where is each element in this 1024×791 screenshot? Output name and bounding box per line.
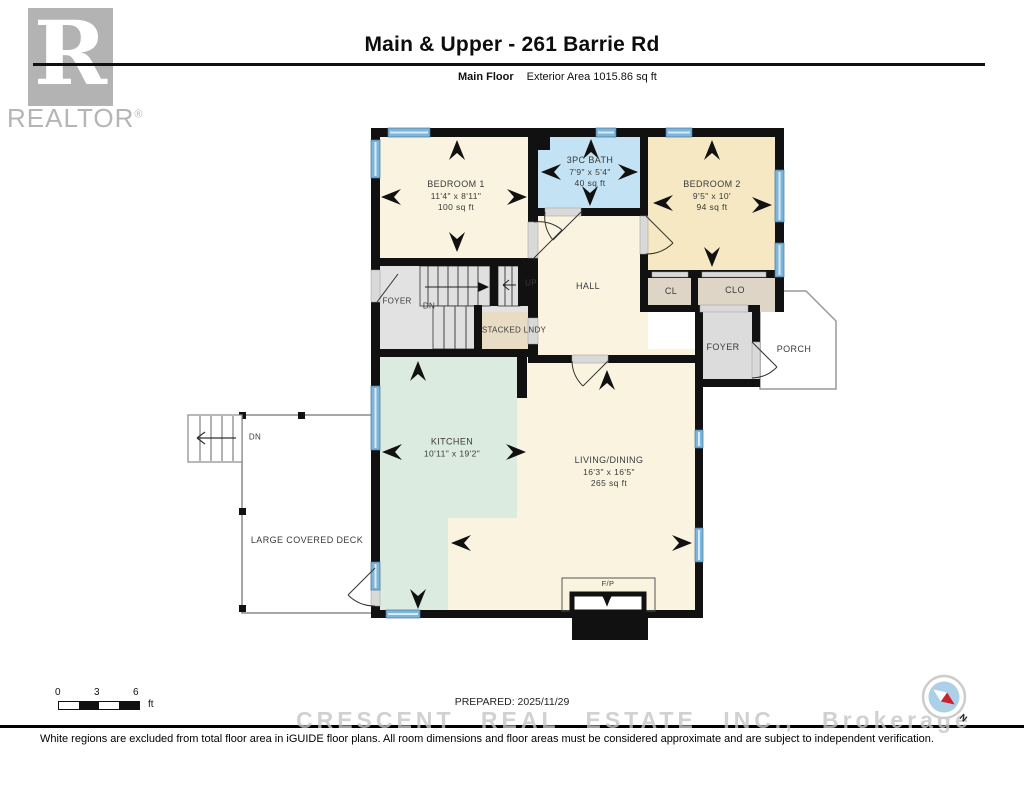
floor-plan-page: R REALTOR® Main & Upper - 261 Barrie Rd … — [0, 0, 1024, 791]
room-label-bath: 3PC BATH 7'9" x 5'4" 40 sq ft — [567, 155, 614, 189]
room-dims: 9'5" x 10' — [683, 191, 741, 202]
room-label-cl: CL — [665, 286, 677, 298]
room-label-porch: PORCH — [777, 344, 812, 356]
brokerage-watermark: CRESCENT REAL ESTATE INC., Brokerage — [296, 707, 972, 734]
room-name: BEDROOM 1 — [427, 179, 485, 191]
room-dims: 11'4" x 8'11" — [427, 191, 485, 202]
room-label-bedroom1: BEDROOM 1 11'4" x 8'11" 100 sq ft — [427, 179, 485, 213]
room-area: 94 sq ft — [683, 202, 741, 213]
floor-plan-drawing — [0, 0, 1024, 791]
stairs-down-label: DN — [423, 302, 435, 313]
stairs-up-label: UP — [525, 279, 537, 290]
compass-north-label: N — [958, 712, 969, 724]
deck-structure — [188, 412, 375, 613]
room-area: 40 sq ft — [567, 178, 614, 189]
room-label-clo: CLO — [725, 285, 745, 297]
room-label-deck: LARGE COVERED DECK — [251, 535, 363, 547]
compass-icon: N — [918, 672, 972, 726]
room-label-foyer-left: FOYER — [382, 297, 411, 308]
room-label-foyer-right: FOYER — [706, 342, 739, 354]
room-name: LIVING/DINING — [575, 455, 644, 467]
room-label-stacked-lndy: STACKED LNDY — [482, 326, 546, 337]
room-dims: 10'11" x 19'2" — [424, 448, 480, 459]
disclaimer-text: White regions are excluded from total fl… — [40, 733, 1020, 745]
fireplace-label: F/P — [602, 579, 615, 589]
room-area: 265 sq ft — [575, 478, 644, 489]
room-label-living-dining: LIVING/DINING 16'3" x 16'5" 265 sq ft — [575, 455, 644, 489]
room-dims: 16'3" x 16'5" — [575, 467, 644, 478]
room-label-hall: HALL — [576, 281, 600, 293]
room-name: 3PC BATH — [567, 155, 614, 167]
room-label-bedroom2: BEDROOM 2 9'5" x 10' 94 sq ft — [683, 179, 741, 213]
deck-stairs-down-label: DN — [249, 433, 261, 444]
room-label-kitchen: KITCHEN 10'11" x 19'2" — [424, 436, 480, 459]
room-name: BEDROOM 2 — [683, 179, 741, 191]
room-dims: 7'9" x 5'4" — [567, 167, 614, 178]
room-name: KITCHEN — [424, 436, 480, 448]
room-area: 100 sq ft — [427, 202, 485, 213]
